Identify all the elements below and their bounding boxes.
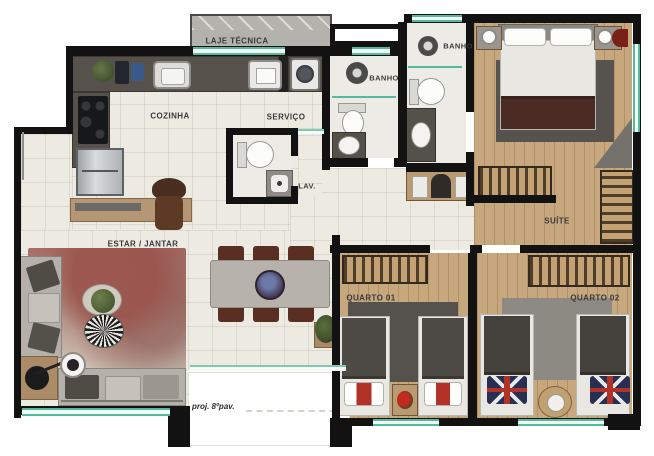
quarto01-pillow-1 [344,382,384,406]
kitchen-floor-left [21,134,72,236]
laundry-sink [248,60,282,90]
wall [474,195,556,203]
quarto01-blanket-2 [422,318,464,379]
laundry-basin [256,68,276,84]
shaft-box [330,24,404,46]
washing-machine [290,58,320,91]
dresser-mirror [431,174,451,198]
quarto02-wardrobe [528,255,630,287]
quarto02-blanket-2 [580,316,626,375]
wall [398,22,407,167]
wall [14,127,21,418]
quarto02-blanket-1 [484,316,530,375]
washer-door [296,65,314,83]
suite-blanket [501,96,595,129]
wall [66,46,73,134]
suite-pillow [504,28,546,46]
lav-shower [266,170,293,197]
sink-basin [161,68,185,85]
sofa-pillow [105,376,141,401]
wall [466,14,474,112]
flowers [397,391,413,409]
room-label-quarto-02: QUARTO 02 [570,294,619,303]
sofa-pillow [143,375,179,399]
banho-social-basin [338,136,360,155]
floor-plan: LAJE TÉCNICA COZINHA SERVIÇO LAV. BANHO … [0,0,654,456]
quarto01-pillow-2 [424,382,462,406]
knife-block [115,61,129,84]
sofa-cushion [26,259,61,292]
banho-social-showerhead [346,62,368,84]
banho-social-shower-glass [332,96,396,98]
wall [322,46,330,170]
wall-column [608,414,640,430]
wall [520,245,640,253]
plant [92,60,114,82]
floor-lamp-head [60,352,86,378]
room-label-laje-tecnica: LAJE TÉCNICA [205,37,268,46]
sofa-cushion [28,293,60,323]
kitchen-sink [153,61,191,89]
quarto01-blanket-1 [342,318,386,379]
quarto01-nightstand [392,384,418,416]
sofa-back-line [61,400,183,402]
dresser-tray [412,176,428,198]
banho-suite-toilet-bowl [417,78,445,105]
quarto02-round-table [538,386,572,418]
door-swing-line [22,132,24,180]
window [373,419,439,426]
coffee-table [82,284,122,316]
desk-runner [75,203,141,211]
glass-partition [298,129,324,134]
table-plate [547,394,565,412]
window [633,44,640,132]
hall-dresser [406,170,472,201]
wall [291,128,298,156]
room-label-cozinha: COZINHA [150,112,189,121]
room-label-estar-jantar: ESTAR / JANTAR [108,240,179,249]
dining-table [210,260,330,308]
projection-note: proj. 8ºpav. [192,402,235,411]
sofa-left-section [20,256,62,358]
window [412,15,462,22]
fridge [76,148,124,196]
floor-lamp-shade [67,359,79,371]
wall [468,253,477,418]
window [193,47,285,55]
room-label-banho-suite: BANHO [443,42,473,51]
banho-suite-shower-glass [408,66,462,68]
banho-suite-basin [411,122,431,148]
window [352,47,390,55]
wall-column [168,406,190,447]
suite-pillow [550,28,592,46]
wall [332,235,340,426]
room-label-suite: SUÍTE [544,217,570,226]
wall [291,186,298,204]
room-label-servico: SERVIÇO [267,113,306,122]
suite-wardrobe-side [600,170,634,244]
suite-lamp [481,29,497,45]
patterned-pouf [84,314,124,348]
lav-toilet-bowl [246,141,274,168]
wall [406,163,474,172]
window [22,408,170,416]
wall [226,128,298,135]
banho-suite-showerhead [418,36,438,56]
wall [322,158,368,167]
suite-lamp [597,29,613,45]
plant [91,289,115,313]
desk-chair-seat [155,196,183,230]
sofa-pillow [65,375,99,399]
quarto01-wardrobe [342,255,428,284]
bottles [131,63,144,81]
quarto02-unionjack-pillow-1 [487,376,527,404]
wall [466,152,474,206]
suite-decor-bowl [612,29,628,47]
quarto02-unionjack-pillow-2 [590,376,630,404]
wall [470,245,482,253]
window [190,365,346,371]
window [518,419,604,426]
room-label-lav: LAV. [298,182,315,191]
wall [226,128,233,204]
sofa-cushion [27,322,60,354]
wall [226,197,298,204]
room-label-quarto-01: QUARTO 01 [346,294,395,303]
room-label-banho-social: BANHO [369,74,399,83]
fridge-handle [82,170,118,172]
projection-dashed-line [246,410,346,412]
cooktop [78,96,108,144]
wall [330,245,430,253]
shower-drain [277,181,282,186]
table-centerpiece [255,270,285,300]
